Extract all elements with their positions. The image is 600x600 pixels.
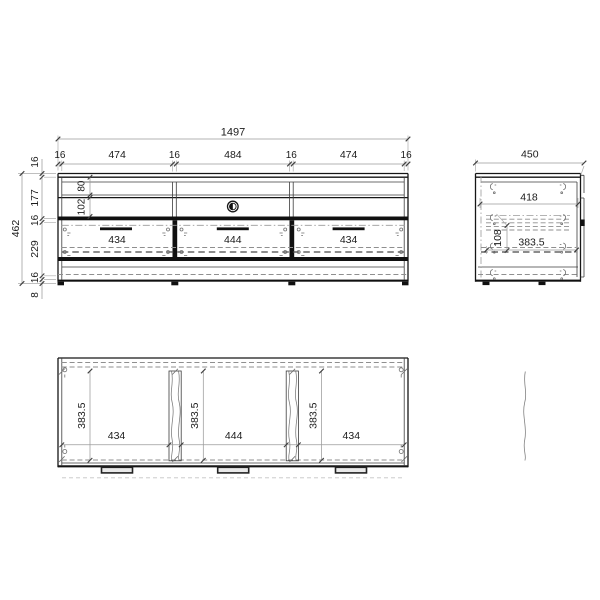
dim-shelf-height-label-1: 102 (77, 198, 88, 215)
dim-compartment-depth-label-2: 383.5 (307, 402, 319, 428)
cable-grommet-icon (228, 201, 239, 212)
dim-left-chain-label-0: 16 (30, 156, 41, 168)
front-dimensions: 1497 16 474 16 484 16 474 16 462 16 177 … (10, 126, 412, 299)
base-edge-band (476, 280, 581, 282)
top-dimensions: 383.5 383.5 383.5 434 444 434 (60, 369, 407, 463)
dim-top-chain-label-1: 474 (108, 149, 126, 161)
base-edge-band (58, 280, 408, 282)
dim-inner-depth-label: 418 (520, 192, 538, 204)
top-view: 383.5 383.5 383.5 434 444 434 (58, 358, 600, 478)
top-structure (58, 358, 600, 478)
foot (218, 467, 249, 473)
dim-drawer-height-label: 108 (492, 229, 504, 247)
dim-top-chain-label-5: 474 (340, 149, 358, 161)
dim-top-chain-label-6: 16 (401, 150, 413, 161)
dim-top-chain-label-2: 16 (169, 150, 181, 161)
foot (483, 282, 490, 285)
dim-overall-width-label: 1497 (221, 126, 245, 138)
front-structure (58, 174, 409, 286)
drawer-handle (333, 227, 365, 230)
foot (288, 282, 295, 286)
dim-compartment-width-label-0: 434 (108, 430, 126, 442)
bottom-panel-band (58, 257, 408, 261)
foot (539, 282, 546, 285)
foot (58, 282, 65, 286)
drawer-handle (217, 227, 249, 230)
dim-compartment-depth-label-1: 383.5 (189, 402, 201, 428)
plinth-feet (102, 467, 367, 473)
divider-grain-hatch (171, 372, 600, 461)
middle-panel-band (58, 217, 408, 221)
wall-fitting-nub (581, 220, 585, 227)
dim-drawer-width-label-1: 444 (224, 234, 242, 246)
divider-section (290, 220, 295, 260)
dim-left-chain-label-5: 8 (30, 292, 41, 298)
front-feet (58, 282, 409, 286)
side-dimensions: 450 418 108 383.5 (473, 149, 586, 255)
dim-top-chain-label-4: 16 (286, 150, 298, 161)
technical-drawing-canvas: 1497 16 474 16 484 16 474 16 462 16 177 … (0, 0, 600, 600)
dim-drawer-width-label-2: 434 (340, 234, 358, 246)
foot (171, 282, 178, 286)
front-view: 1497 16 474 16 484 16 474 16 462 16 177 … (10, 126, 412, 299)
foot (336, 467, 367, 473)
dim-left-chain-label-4: 16 (30, 272, 41, 284)
dim-compartment-width-label-2: 434 (343, 430, 361, 442)
dim-compartment-width-label-1: 444 (225, 430, 243, 442)
dim-drawer-width-label-0: 434 (108, 234, 126, 246)
drawing-page: 1497 16 474 16 484 16 474 16 462 16 177 … (0, 0, 600, 600)
foot (102, 467, 133, 473)
side-view: 450 418 108 383.5 (473, 149, 586, 286)
divider-section (173, 220, 178, 260)
dim-overall-depth-label: 450 (521, 149, 539, 161)
dim-top-chain-label-3: 484 (224, 149, 242, 161)
dim-left-chain-label-3: 229 (29, 240, 41, 258)
dim-shelf-height-label-0: 80 (77, 180, 88, 192)
dim-compartment-depth-label-0: 383.5 (76, 402, 88, 428)
dim-top-chain-label-0: 16 (54, 150, 66, 161)
dim-left-chain-label-2: 16 (30, 214, 41, 226)
dim-drawer-depth-label: 383.5 (518, 237, 544, 249)
dim-overall-height-label: 462 (10, 220, 22, 238)
dim-left-chain-label-1: 177 (29, 189, 41, 207)
foot (402, 282, 409, 286)
drawer-handle (100, 227, 132, 230)
